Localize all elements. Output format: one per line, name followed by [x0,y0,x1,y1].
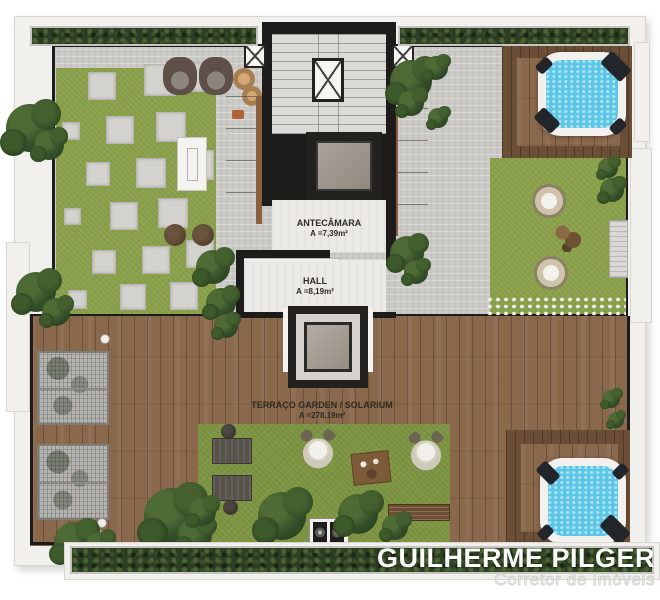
antecamara-name: ANTECÂMARA [262,218,396,229]
bush [602,390,620,408]
bush [424,56,448,80]
bush [188,498,216,526]
terraco-area: A =278,19m² [222,411,422,421]
watermark: GUILHERME PILGER Corretor de Imóveis [377,543,655,590]
bush [196,250,230,284]
bush [214,314,238,338]
bush [404,260,428,284]
bush [338,494,378,534]
bush [428,108,448,128]
bush [598,158,618,178]
bush [398,90,424,116]
hedge-top-right [398,26,630,46]
vegetation-layer [0,0,660,600]
bush [42,298,70,326]
hall-name: HALL [254,276,376,287]
terraco-label: TERRAÇO GARDEN / SOLARIUM A =278,19m² [222,400,422,421]
bush [600,178,624,202]
antecamara-area: A =7,39m² [262,229,396,239]
hedge-top-left [30,26,258,46]
bush [382,514,408,540]
bush [608,412,624,428]
floor-plan: ANTECÂMARA A =7,39m² HALL A =8,19m² TERR… [0,0,660,600]
bush [258,492,306,540]
hall-area: A =8,19m² [254,287,376,297]
bush [34,130,64,160]
hall-label: HALL A =8,19m² [254,276,376,297]
antecamara-label: ANTECÂMARA A =7,39m² [262,218,396,239]
terraco-name: TERRAÇO GARDEN / SOLARIUM [222,400,422,411]
